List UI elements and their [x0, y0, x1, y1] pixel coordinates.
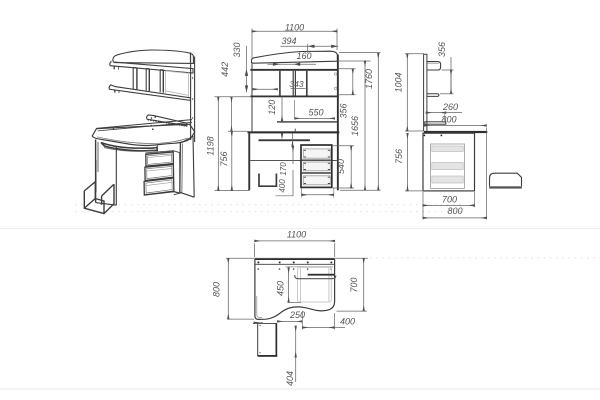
- svg-text:260: 260: [442, 102, 458, 112]
- svg-text:1100: 1100: [285, 22, 304, 32]
- svg-text:1100: 1100: [287, 230, 306, 240]
- svg-text:756: 756: [219, 151, 229, 166]
- svg-text:356: 356: [437, 42, 447, 57]
- svg-text:120: 120: [267, 100, 277, 115]
- svg-text:250: 250: [289, 310, 305, 320]
- svg-text:550: 550: [308, 107, 323, 117]
- svg-text:700: 700: [349, 277, 359, 292]
- svg-text:1760: 1760: [364, 69, 374, 89]
- svg-text:404: 404: [285, 371, 295, 386]
- svg-text:343: 343: [289, 79, 303, 89]
- svg-text:442: 442: [220, 62, 230, 77]
- svg-text:356: 356: [338, 103, 348, 118]
- svg-text:756: 756: [394, 149, 404, 164]
- svg-text:1004: 1004: [394, 72, 404, 92]
- svg-text:1656: 1656: [350, 116, 360, 136]
- svg-text:800: 800: [441, 115, 456, 125]
- svg-text:330: 330: [232, 42, 242, 57]
- svg-text:170: 170: [279, 162, 288, 176]
- svg-text:700: 700: [442, 195, 457, 205]
- svg-text:800: 800: [211, 282, 221, 297]
- svg-text:800: 800: [447, 206, 462, 216]
- svg-text:400: 400: [340, 316, 355, 326]
- svg-text:400: 400: [278, 179, 287, 193]
- svg-text:540: 540: [336, 159, 346, 174]
- svg-text:394: 394: [281, 36, 296, 46]
- svg-text:450: 450: [275, 281, 285, 296]
- svg-text:1198: 1198: [206, 136, 216, 155]
- svg-text:160: 160: [296, 51, 311, 61]
